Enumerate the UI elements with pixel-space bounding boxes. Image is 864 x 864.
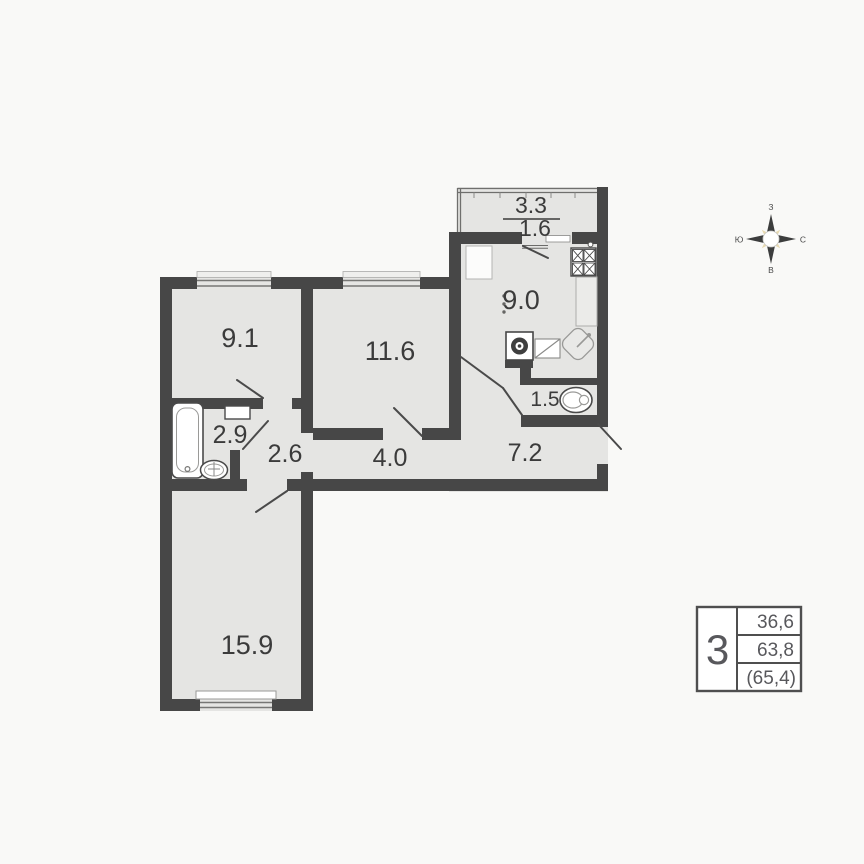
total-area-with-balcony-value: (65,4) — [746, 668, 796, 689]
wall-segment — [505, 360, 533, 368]
fridge-icon — [466, 246, 492, 279]
wall-segment — [287, 479, 608, 491]
label-hallway: 7.2 — [508, 439, 543, 467]
bathroom-cabinet-icon — [225, 406, 250, 419]
wall-segment — [452, 232, 522, 244]
counter-unit-icon — [535, 339, 560, 358]
compass-letter-bottom: В — [768, 265, 774, 275]
total-area-value: 63,8 — [757, 640, 794, 661]
washing-machine-icon — [506, 332, 533, 360]
wall-segment — [230, 450, 240, 483]
area-summary-table: 3 36,6 63,8 (65,4) — [697, 607, 801, 691]
wall-segment — [597, 464, 608, 491]
rooms-count: 3 — [706, 626, 729, 673]
label-livingroom: 15.9 — [221, 630, 274, 660]
bathtub-icon — [172, 403, 203, 478]
kitchen-counter-icon — [576, 277, 597, 326]
wall-segment — [449, 232, 461, 440]
label-bedroom2: 11.6 — [365, 336, 416, 366]
compass-letter-left: Ю — [735, 235, 744, 245]
wall-segment — [531, 378, 597, 385]
wall-segment — [520, 368, 531, 385]
wall-segment — [160, 277, 172, 711]
wall-segment — [301, 277, 313, 433]
washbasin-icon — [201, 461, 228, 480]
toilet-icon — [560, 388, 592, 413]
label-hall-small: 2.6 — [268, 440, 303, 468]
floorplan-canvas: 9.1 11.6 9.0 2.9 2.6 4.0 7.2 1.5 15.9 3.… — [0, 0, 864, 864]
wall-segment — [301, 472, 313, 711]
label-kitchen: 9.0 — [502, 285, 540, 315]
living-area-value: 36,6 — [757, 612, 794, 633]
label-wc: 1.5 — [530, 388, 559, 411]
label-bathroom: 2.9 — [213, 421, 248, 449]
label-corridor: 4.0 — [373, 444, 408, 472]
label-bedroom1: 9.1 — [221, 323, 259, 353]
compass-center — [763, 231, 779, 247]
stove-icon — [571, 248, 596, 276]
wall-segment — [521, 415, 608, 427]
wall-segment — [313, 428, 383, 440]
floor-livingroom-block — [160, 477, 313, 711]
compass-rose: З С В Ю — [735, 202, 806, 275]
compass-letter-top: З — [768, 202, 773, 212]
wall-segment — [597, 187, 608, 427]
vent-icon — [588, 242, 593, 247]
compass-letter-right: С — [800, 235, 806, 245]
floorplan-page: 9.1 11.6 9.0 2.9 2.6 4.0 7.2 1.5 15.9 3.… — [0, 0, 864, 864]
label-balcony-area-reduced: 1.6 — [519, 215, 551, 241]
